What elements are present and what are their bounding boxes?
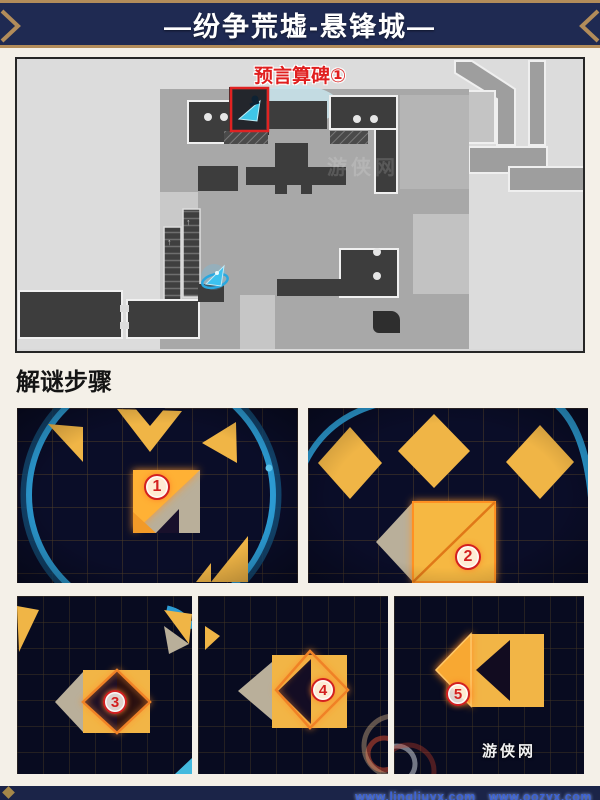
step-1-badge: 1 bbox=[144, 474, 170, 500]
puzzle-step-3-image: 3 bbox=[17, 596, 192, 774]
right-chevron-icon bbox=[578, 9, 600, 43]
puzzle-step-4-image: 4 bbox=[198, 596, 388, 774]
puzzle-4-canvas bbox=[198, 596, 388, 774]
step-5-badge: 5 bbox=[446, 682, 470, 706]
watermark-logo-text: 游侠网 bbox=[482, 740, 536, 761]
svg-text:↑: ↑ bbox=[186, 217, 191, 227]
guide-page: —纷争荒墟-悬锋城— bbox=[0, 0, 600, 800]
header-banner: —纷争荒墟-悬锋城— bbox=[0, 0, 600, 48]
step-3-badge: 3 bbox=[103, 690, 127, 714]
watermark-urls: www.lingliuyx.com www.oozyx.com bbox=[355, 786, 592, 800]
step-4-badge: 4 bbox=[311, 678, 335, 702]
puzzle-step-2-image: 2 bbox=[308, 408, 588, 583]
section-title: 解谜步骤 bbox=[16, 362, 112, 397]
page-title: —纷争荒墟-悬锋城— bbox=[164, 5, 436, 44]
puzzle-marker-icon bbox=[233, 90, 266, 130]
map-marker-label: 预言算碑① bbox=[200, 61, 400, 88]
puzzle-step-1-image: 1 bbox=[17, 408, 298, 583]
map-image: ↑ ↑ bbox=[17, 59, 583, 349]
puzzle-step-5-image: 5 游侠网 bbox=[394, 596, 584, 774]
area-map: ↑ ↑ 预言算碑① 游侠网 bbox=[15, 57, 585, 353]
left-chevron-icon bbox=[0, 9, 22, 43]
map-watermark-text: 游侠网 bbox=[327, 151, 399, 180]
step-2-badge: 2 bbox=[455, 544, 481, 570]
puzzle-2-canvas bbox=[308, 408, 588, 583]
svg-text:↑: ↑ bbox=[167, 237, 172, 247]
puzzle-3-canvas bbox=[17, 596, 192, 774]
